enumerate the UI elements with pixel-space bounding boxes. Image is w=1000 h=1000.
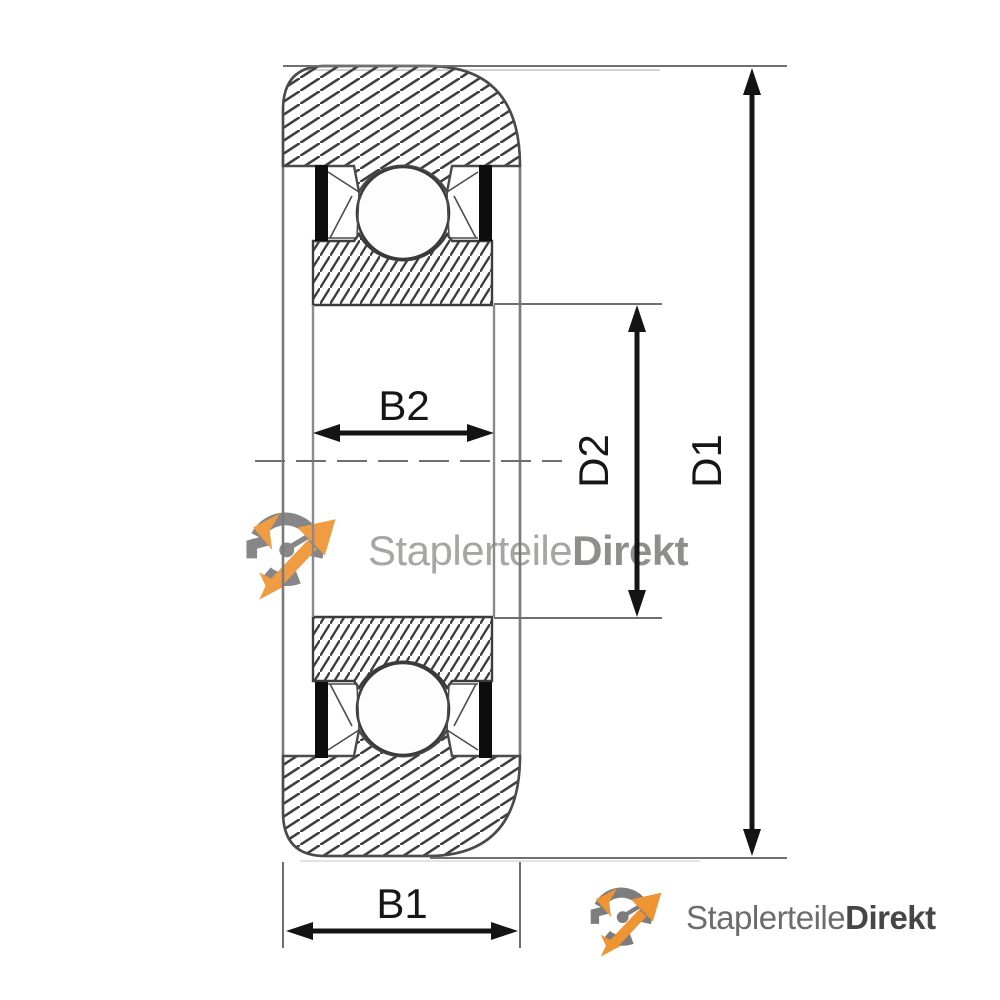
footer-logo: StaplerteileDirekt	[584, 876, 936, 960]
ball-top	[357, 167, 449, 259]
d2-arrowhead-bottom	[628, 590, 646, 617]
b2-label: B2	[378, 382, 429, 429]
d2-label: D2	[570, 434, 617, 488]
d1-arrowhead-top	[743, 68, 761, 95]
ball-bottom	[357, 663, 449, 755]
staplerteiledirekt-logo-icon	[584, 876, 668, 960]
footer-brand-bold: Direkt	[845, 899, 936, 936]
seal-top-right	[479, 165, 492, 241]
dimension-b1: B1	[286, 880, 518, 940]
b1-arrowhead-left	[286, 922, 313, 940]
top-bearing-section	[283, 66, 520, 305]
seal-bottom-right	[479, 682, 492, 758]
footer-logo-text: StaplerteileDirekt	[686, 899, 936, 937]
b1-label: B1	[376, 880, 427, 927]
bearing-technical-drawing: B2 B1 D2 D1	[0, 0, 1000, 1000]
d1-arrowhead-bottom	[743, 829, 761, 856]
d2-arrowhead-top	[628, 305, 646, 332]
bottom-bearing-section	[283, 617, 520, 856]
b1-arrowhead-right	[491, 922, 518, 940]
b2-arrowhead-right	[467, 424, 494, 442]
footer-brand-regular: Staplerteile	[686, 899, 845, 936]
page: StaplerteileDirekt	[0, 0, 1000, 1000]
seal-bottom-left	[315, 682, 328, 758]
dimension-b2: B2	[313, 382, 494, 442]
seal-top-left	[315, 165, 328, 241]
d1-label: D1	[683, 434, 730, 488]
b2-arrowhead-left	[313, 424, 340, 442]
dimension-d1: D1	[683, 68, 761, 856]
dimension-d2: D2	[570, 305, 646, 617]
